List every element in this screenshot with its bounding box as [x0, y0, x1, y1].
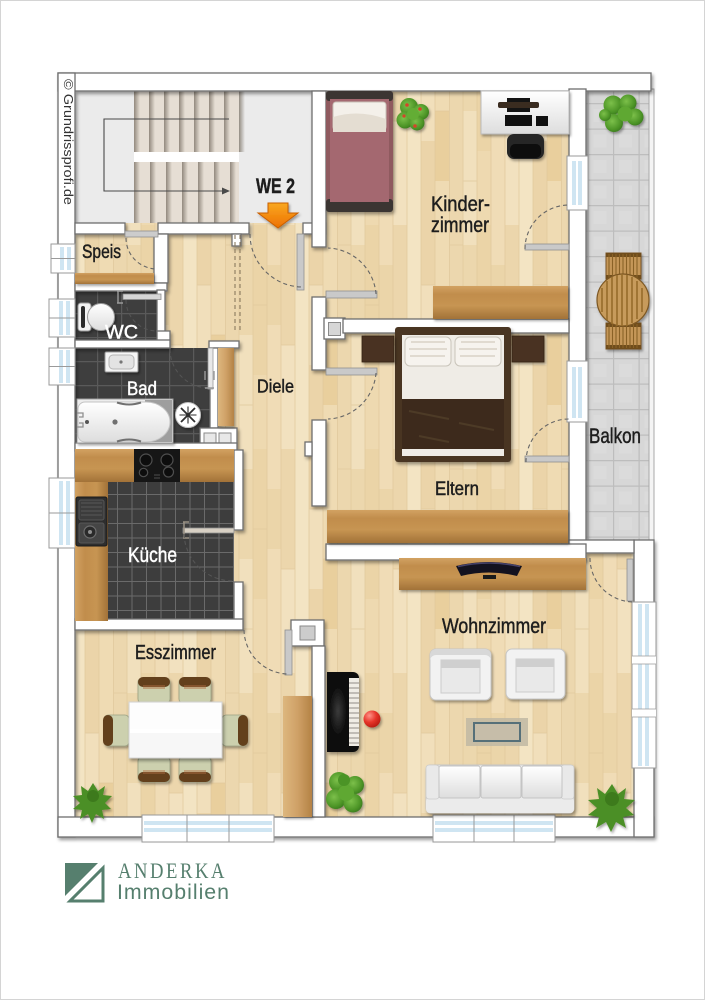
svg-text:Eltern: Eltern: [435, 479, 479, 500]
svg-text:Küche: Küche: [128, 544, 177, 567]
svg-text:Immobilien: Immobilien: [117, 880, 230, 904]
svg-text:Diele: Diele: [257, 376, 294, 397]
svg-text:WC: WC: [105, 322, 138, 344]
svg-text:Bad: Bad: [127, 379, 157, 400]
svg-text:© Grundrissprofi.de: © Grundrissprofi.de: [61, 79, 75, 205]
svg-text:Wohnzimmer: Wohnzimmer: [442, 615, 546, 638]
svg-text:Kinder-: Kinder-: [431, 193, 490, 216]
svg-text:Speis: Speis: [82, 242, 121, 263]
svg-text:Esszimmer: Esszimmer: [135, 642, 216, 664]
svg-text:zimmer: zimmer: [431, 214, 489, 237]
svg-text:WE 2: WE 2: [256, 175, 295, 198]
svg-text:Balkon: Balkon: [589, 425, 641, 448]
